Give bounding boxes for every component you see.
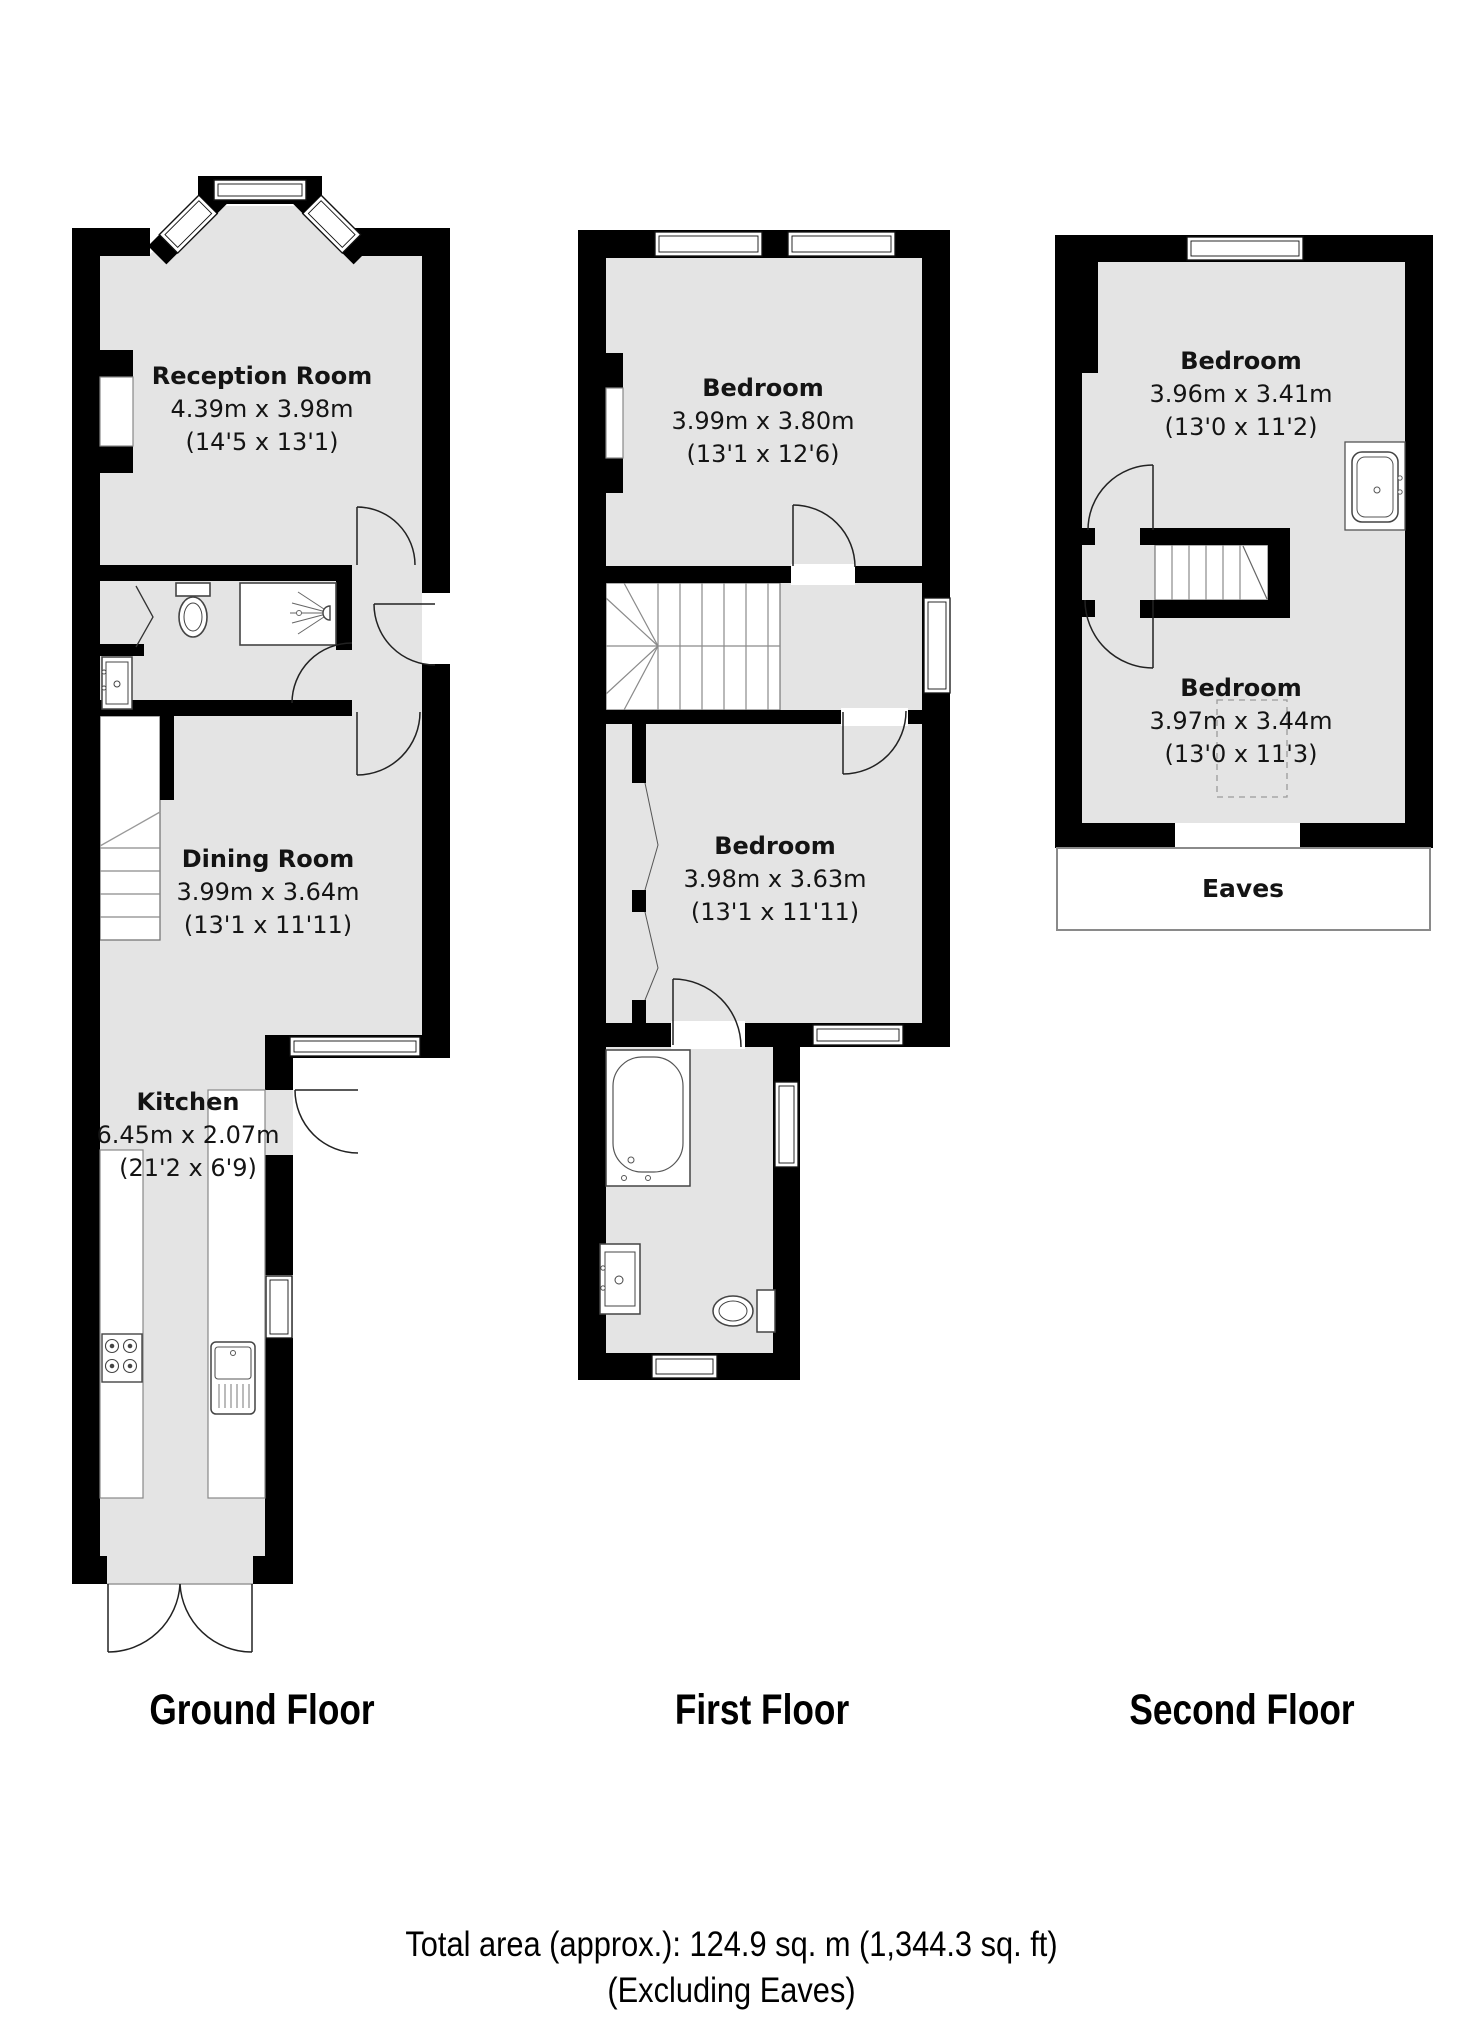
dining-room-label: Dining Room 3.99m x 3.64m (13'1 x 11'11): [176, 843, 359, 942]
second-floor-title: Second Floor: [1129, 1686, 1354, 1735]
bathtub-icon: [606, 1050, 690, 1186]
second-floor-plan: [1055, 235, 1433, 930]
room-dim-metric: 3.98m x 3.63m: [683, 863, 866, 896]
excluding-eaves-text: (Excluding Eaves): [88, 1968, 1375, 2014]
total-area-note: Total area (approx.): 124.9 sq. m (1,344…: [88, 1922, 1375, 2014]
second-bedroom-front-label: Bedroom 3.96m x 3.41m (13'0 x 11'2): [1149, 345, 1332, 444]
fireplace-alcove: [100, 377, 133, 446]
room-dim-metric: 3.99m x 3.64m: [176, 876, 359, 909]
room-dim-imperial: (21'2 x 6'9): [96, 1152, 279, 1185]
room-dim-metric: 3.97m x 3.44m: [1149, 705, 1332, 738]
room-name: Bedroom: [1149, 672, 1332, 705]
basin-icon-ground: [102, 657, 132, 709]
room-name: Reception Room: [152, 360, 373, 393]
room-dim-imperial: (13'1 x 11'11): [176, 909, 359, 942]
kitchen-label: Kitchen 6.45m x 2.07m (21'2 x 6'9): [96, 1086, 279, 1185]
room-name: Bedroom: [1149, 345, 1332, 378]
second-windows: [1187, 237, 1303, 260]
stairs-second: [1155, 545, 1268, 600]
hob-icon: [102, 1334, 142, 1382]
room-name: Dining Room: [176, 843, 359, 876]
room-dim-imperial: (13'0 x 11'3): [1149, 738, 1332, 771]
floorplan-page: Reception Room 4.39m x 3.98m (14'5 x 13'…: [0, 0, 1463, 2025]
second-bedroom-back-label: Bedroom 3.97m x 3.44m (13'0 x 11'3): [1149, 672, 1332, 771]
stairs-ground: [100, 716, 160, 940]
room-name: Bedroom: [671, 372, 854, 405]
room-dim-imperial: (14'5 x 13'1): [152, 426, 373, 459]
first-floor-title: First Floor: [675, 1686, 849, 1735]
stairs-first: [606, 583, 780, 710]
room-dim-metric: 3.96m x 3.41m: [1149, 378, 1332, 411]
shower-icon: [240, 583, 336, 645]
first-bedroom-back-label: Bedroom 3.98m x 3.63m (13'1 x 11'11): [683, 830, 866, 929]
total-area-text: Total area (approx.): 124.9 sq. m (1,344…: [88, 1922, 1375, 1968]
toilet-icon: [176, 583, 210, 637]
room-dim-imperial: (13'1 x 12'6): [671, 438, 854, 471]
fireplace-alcove-first: [606, 388, 623, 458]
room-dim-imperial: (13'0 x 11'2): [1149, 411, 1332, 444]
room-dim-metric: 6.45m x 2.07m: [96, 1119, 279, 1152]
room-dim-metric: 4.39m x 3.98m: [152, 393, 373, 426]
room-name: Bedroom: [683, 830, 866, 863]
reception-room-label: Reception Room 4.39m x 3.98m (14'5 x 13'…: [152, 360, 373, 459]
kitchen-sink-icon: [211, 1342, 255, 1414]
first-bedroom-front-label: Bedroom 3.99m x 3.80m (13'1 x 12'6): [671, 372, 854, 471]
room-name: Kitchen: [96, 1086, 279, 1119]
basin-icon-first: [600, 1244, 640, 1314]
room-dim-metric: 3.99m x 3.80m: [671, 405, 854, 438]
french-doors-icon: [107, 1584, 253, 1652]
basin-icon-second: [1345, 442, 1405, 530]
ground-floor-title: Ground Floor: [149, 1686, 374, 1735]
room-dim-imperial: (13'1 x 11'11): [683, 896, 866, 929]
eaves-label: Eaves: [1202, 874, 1284, 903]
